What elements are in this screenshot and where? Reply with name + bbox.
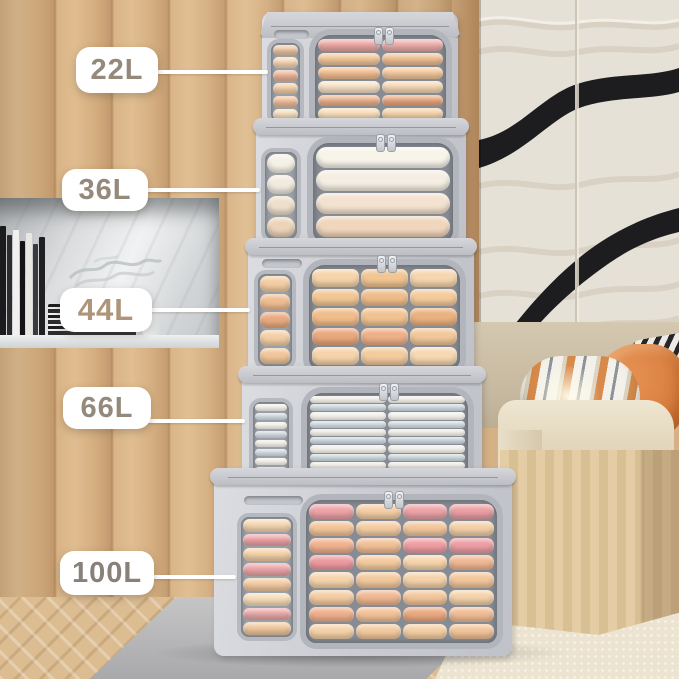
towel <box>310 429 386 436</box>
towel <box>243 563 291 576</box>
towel-row <box>243 563 291 576</box>
towel-row <box>267 196 295 215</box>
zipper-pulls-icon <box>379 383 399 401</box>
towel-row <box>310 421 465 428</box>
towel <box>267 175 295 194</box>
wood-bed-frame <box>500 450 679 635</box>
box-front-window <box>313 143 454 241</box>
towel-row <box>273 96 298 107</box>
towel <box>356 624 401 639</box>
towel-row <box>255 458 287 465</box>
towel <box>243 608 291 621</box>
towel <box>273 70 298 81</box>
towel-row <box>267 154 295 173</box>
box-side-handle <box>262 259 303 268</box>
towel-row <box>255 413 287 420</box>
book-spine <box>0 226 6 336</box>
towel <box>388 454 464 461</box>
towel <box>260 312 290 328</box>
towel <box>309 555 354 570</box>
book-spine <box>33 244 39 336</box>
capacity-text: 44L <box>78 292 134 328</box>
box-side-window <box>258 274 292 366</box>
wavy-panel-graphic <box>479 0 679 348</box>
book-spine <box>7 235 13 336</box>
towel <box>356 538 401 553</box>
book-spines <box>0 226 46 336</box>
towel <box>449 624 494 639</box>
towel <box>316 193 451 214</box>
towel <box>388 404 464 411</box>
towel-row <box>273 70 298 81</box>
towel-row <box>312 289 457 307</box>
towel <box>255 422 287 429</box>
towel <box>361 347 408 365</box>
towel <box>310 396 386 403</box>
box-lid <box>210 468 517 485</box>
towel-row <box>310 404 465 411</box>
towel <box>309 572 354 587</box>
towel-row <box>309 607 494 622</box>
towel <box>356 555 401 570</box>
book-spine <box>20 241 26 336</box>
towel <box>361 308 408 326</box>
towel <box>255 413 287 420</box>
towel-row <box>267 217 295 236</box>
towel-row <box>309 538 494 553</box>
niche-shelf-edge <box>0 335 219 348</box>
towel <box>449 538 494 553</box>
towel-row <box>316 193 451 214</box>
towel <box>309 607 354 622</box>
box-lid <box>238 366 485 383</box>
towel <box>309 521 354 536</box>
towel-row <box>309 590 494 605</box>
glass-sculpture <box>64 248 164 292</box>
box-side-window <box>265 152 297 239</box>
towel <box>309 624 354 639</box>
towel <box>356 590 401 605</box>
zipper-pull-icon <box>379 383 388 401</box>
towel <box>410 289 457 307</box>
side-window-contents <box>273 45 298 120</box>
front-window-contents <box>318 39 443 120</box>
towel-row <box>260 348 290 364</box>
box-side-window <box>271 43 300 122</box>
towel <box>410 328 457 346</box>
towel <box>312 347 359 365</box>
towel <box>403 590 448 605</box>
towel-row <box>243 519 291 532</box>
zipper-pull-icon <box>388 255 397 273</box>
towel-row <box>255 449 287 456</box>
towel <box>260 330 290 346</box>
towel-row <box>260 294 290 310</box>
towel-row <box>318 53 443 65</box>
towel <box>403 504 448 519</box>
capacity-label-36l: 36L <box>62 169 148 211</box>
towel <box>356 572 401 587</box>
towel <box>255 458 287 465</box>
towel-row <box>255 422 287 429</box>
towel <box>255 431 287 438</box>
towel <box>388 445 464 452</box>
towel <box>260 276 290 292</box>
towel <box>310 421 386 428</box>
towel-row <box>318 81 443 93</box>
towel-row <box>273 57 298 68</box>
box-side-handle <box>244 496 304 505</box>
towel-row <box>309 624 494 639</box>
towel <box>361 328 408 346</box>
towel <box>312 269 359 287</box>
wavy-wall-panel <box>479 0 679 348</box>
towel-row <box>312 328 457 346</box>
towel <box>243 548 291 561</box>
towel <box>449 555 494 570</box>
towel-row <box>243 608 291 621</box>
towel <box>310 445 386 452</box>
capacity-label-44l: 44L <box>60 288 152 332</box>
towel <box>403 607 448 622</box>
towel <box>388 421 464 428</box>
towel <box>309 590 354 605</box>
towel <box>382 53 444 65</box>
capacity-text: 100L <box>72 557 142 590</box>
towel <box>318 67 380 79</box>
towel <box>382 81 444 93</box>
towel <box>403 572 448 587</box>
towel <box>310 412 386 419</box>
product-scene: 22L 36L 44L 66L 100L <box>0 0 679 679</box>
towel-row <box>243 534 291 547</box>
towel <box>255 440 287 447</box>
towel <box>449 590 494 605</box>
towel-row <box>243 593 291 606</box>
leader-line-66l <box>147 419 245 423</box>
towel <box>318 95 380 107</box>
towel <box>403 555 448 570</box>
towel-row <box>273 45 298 56</box>
towel <box>312 289 359 307</box>
zipper-pulls-icon <box>376 134 396 152</box>
storage-box-22l <box>262 12 458 134</box>
capacity-label-22l: 22L <box>76 47 158 93</box>
towel <box>243 534 291 547</box>
towel-row <box>316 216 451 237</box>
towel <box>309 538 354 553</box>
towel <box>243 519 291 532</box>
towel <box>243 622 291 635</box>
towel <box>356 521 401 536</box>
zipper-pull-icon <box>377 255 386 273</box>
towel-row <box>310 429 465 436</box>
zipper-pulls-icon <box>377 255 397 273</box>
towel <box>273 45 298 56</box>
towel <box>310 404 386 411</box>
towel <box>388 437 464 444</box>
towel <box>410 308 457 326</box>
towel <box>449 572 494 587</box>
towel-row <box>310 412 465 419</box>
towel <box>318 39 380 51</box>
capacity-text: 22L <box>91 54 144 87</box>
towel <box>312 328 359 346</box>
towel-row <box>309 572 494 587</box>
towel-row <box>312 347 457 365</box>
towel-row <box>260 330 290 346</box>
towel-row <box>243 548 291 561</box>
towel <box>316 170 451 191</box>
towel <box>361 289 408 307</box>
towel-row <box>260 276 290 292</box>
towel-row <box>309 555 494 570</box>
towel <box>403 624 448 639</box>
box-side-handle <box>274 30 309 39</box>
side-window-contents <box>267 154 295 237</box>
towel-row <box>243 622 291 635</box>
towel-row <box>310 454 465 461</box>
towel <box>449 607 494 622</box>
towel <box>243 578 291 591</box>
side-window-contents <box>260 276 290 364</box>
leader-line-100l <box>150 575 236 579</box>
towel <box>316 216 451 237</box>
towel-row <box>260 312 290 328</box>
towel <box>243 593 291 606</box>
towel <box>255 449 287 456</box>
towel <box>310 437 386 444</box>
storage-box-100l <box>214 468 512 656</box>
zipper-pull-icon <box>384 491 393 509</box>
storage-box-36l <box>256 118 466 252</box>
towel <box>449 504 494 519</box>
towel-row <box>267 175 295 194</box>
towel <box>388 396 464 403</box>
leader-line-44l <box>148 308 250 312</box>
book-spine <box>13 230 19 336</box>
box-front-window <box>306 500 497 643</box>
towel <box>318 81 380 93</box>
towel <box>403 521 448 536</box>
storage-box-44l <box>248 238 474 380</box>
towel <box>310 454 386 461</box>
side-window-contents <box>243 519 291 635</box>
zipper-pull-icon <box>376 134 385 152</box>
towel <box>273 96 298 107</box>
book-spine <box>26 233 32 336</box>
towel-row <box>255 440 287 447</box>
front-window-contents <box>312 269 457 365</box>
zipper-pull-icon <box>390 383 399 401</box>
towel <box>318 53 380 65</box>
zipper-pulls-icon <box>384 491 404 509</box>
capacity-text: 36L <box>79 174 132 207</box>
towel-row <box>243 578 291 591</box>
zipper-pull-icon <box>374 27 383 45</box>
leader-line-36l <box>144 188 260 192</box>
towel-row <box>316 170 451 191</box>
towel <box>410 347 457 365</box>
box-front-window <box>315 35 446 124</box>
towel <box>382 95 444 107</box>
towel-row <box>318 95 443 107</box>
towel-row <box>310 445 465 452</box>
towel-row <box>309 521 494 536</box>
towel <box>267 196 295 215</box>
zipper-pull-icon <box>387 134 396 152</box>
front-window-contents <box>309 504 494 639</box>
towel <box>273 83 298 94</box>
towel <box>356 607 401 622</box>
zipper-pulls-icon <box>374 27 394 45</box>
capacity-text: 66L <box>81 392 134 425</box>
towel <box>449 521 494 536</box>
towel <box>388 429 464 436</box>
towel <box>382 67 444 79</box>
towel <box>260 348 290 364</box>
towel <box>267 217 295 236</box>
box-lid <box>253 118 469 135</box>
towel <box>267 154 295 173</box>
towel <box>255 404 287 411</box>
capacity-label-66l: 66L <box>63 387 151 429</box>
zipper-pull-icon <box>385 27 394 45</box>
leader-line-22l <box>154 70 268 74</box>
zipper-pull-icon <box>395 491 404 509</box>
capacity-label-100l: 100L <box>60 551 154 595</box>
towel <box>273 57 298 68</box>
towel-row <box>273 83 298 94</box>
towel <box>403 538 448 553</box>
book-spine <box>39 237 45 336</box>
towel-row <box>255 404 287 411</box>
towel-row <box>312 308 457 326</box>
towel <box>309 504 354 519</box>
towel-row <box>310 437 465 444</box>
front-window-contents <box>316 147 451 237</box>
towel <box>260 294 290 310</box>
box-lid <box>245 238 478 255</box>
towel <box>388 412 464 419</box>
towel <box>410 269 457 287</box>
towel-row <box>255 431 287 438</box>
towel-row <box>318 67 443 79</box>
box-side-window <box>241 517 293 637</box>
box-front-window <box>309 265 460 369</box>
towel <box>312 308 359 326</box>
